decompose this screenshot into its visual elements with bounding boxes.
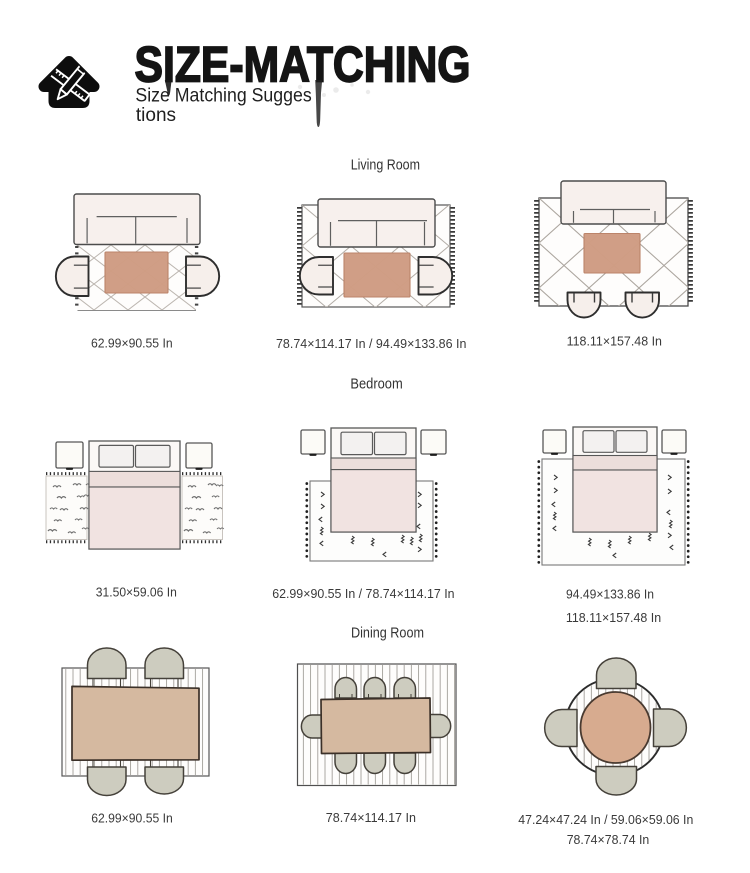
svg-text:78.74×114.17 In / 94.49×133.86: 78.74×114.17 In / 94.49×133.86 In [276, 336, 466, 351]
svg-text:31.50×59.06 In: 31.50×59.06 In [96, 585, 177, 600]
svg-text:118.11×157.48 In: 118.11×157.48 In [567, 334, 662, 349]
svg-text:Living Room: Living Room [351, 157, 420, 174]
svg-text:118.11×157.48 In: 118.11×157.48 In [566, 610, 661, 625]
svg-text:78.74×78.74 In: 78.74×78.74 In [567, 832, 650, 847]
svg-text:94.49×133.86 In: 94.49×133.86 In [566, 587, 654, 602]
svg-text:Bedroom: Bedroom [350, 375, 402, 392]
svg-text:78.74×114.17 In: 78.74×114.17 In [326, 810, 416, 825]
svg-text:62.99×90.55 In: 62.99×90.55 In [91, 336, 173, 351]
svg-text:tions: tions [136, 105, 176, 126]
svg-text:SIZE-MATCHING: SIZE-MATCHING [135, 37, 471, 93]
svg-text:62.99×90.55 In / 78.74×114.17: 62.99×90.55 In / 78.74×114.17 In [272, 586, 454, 601]
svg-text:Dining Room: Dining Room [351, 625, 424, 642]
svg-text:47.24×47.24 In / 59.06×59.06 I: 47.24×47.24 In / 59.06×59.06 In [518, 812, 693, 827]
svg-text:62.99×90.55 In: 62.99×90.55 In [91, 811, 173, 826]
svg-text:Size Matching Sugges: Size Matching Sugges [135, 86, 311, 107]
